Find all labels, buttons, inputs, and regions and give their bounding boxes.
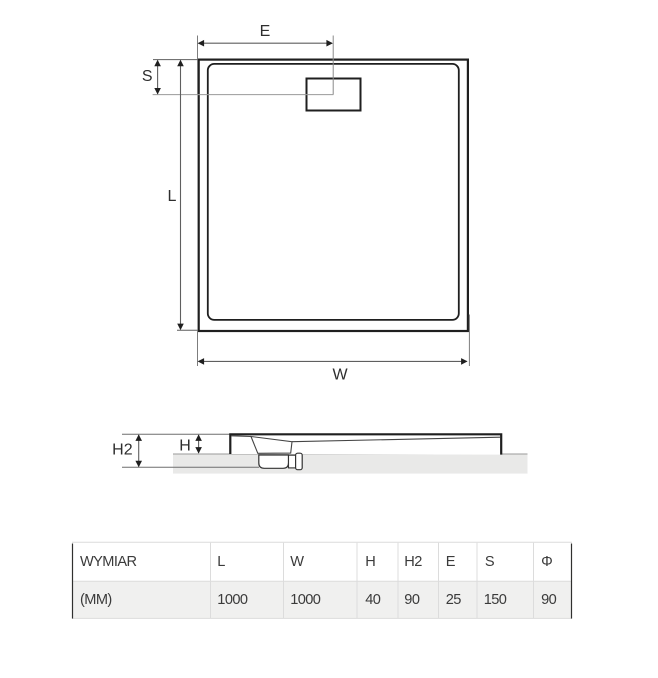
svg-text:H2: H2	[112, 442, 133, 459]
svg-text:1000: 1000	[217, 592, 248, 608]
svg-text:150: 150	[484, 592, 507, 608]
svg-text:E: E	[260, 23, 271, 40]
svg-text:40: 40	[365, 592, 381, 608]
svg-text:E: E	[446, 554, 456, 570]
svg-text:S: S	[485, 554, 495, 570]
svg-text:L: L	[217, 554, 225, 570]
svg-text:1000: 1000	[290, 592, 321, 608]
svg-text:Φ: Φ	[541, 554, 552, 570]
svg-text:H: H	[365, 554, 375, 570]
svg-text:90: 90	[404, 592, 420, 608]
svg-text:25: 25	[446, 592, 462, 608]
svg-text:W: W	[332, 367, 348, 384]
svg-text:H2: H2	[404, 554, 422, 570]
svg-text:L: L	[168, 188, 177, 205]
svg-text:WYMIAR: WYMIAR	[80, 554, 136, 570]
svg-text:H: H	[179, 438, 191, 455]
svg-text:(MM): (MM)	[80, 592, 112, 608]
svg-text:90: 90	[541, 592, 557, 608]
svg-text:S: S	[142, 68, 153, 85]
svg-text:W: W	[290, 554, 304, 570]
